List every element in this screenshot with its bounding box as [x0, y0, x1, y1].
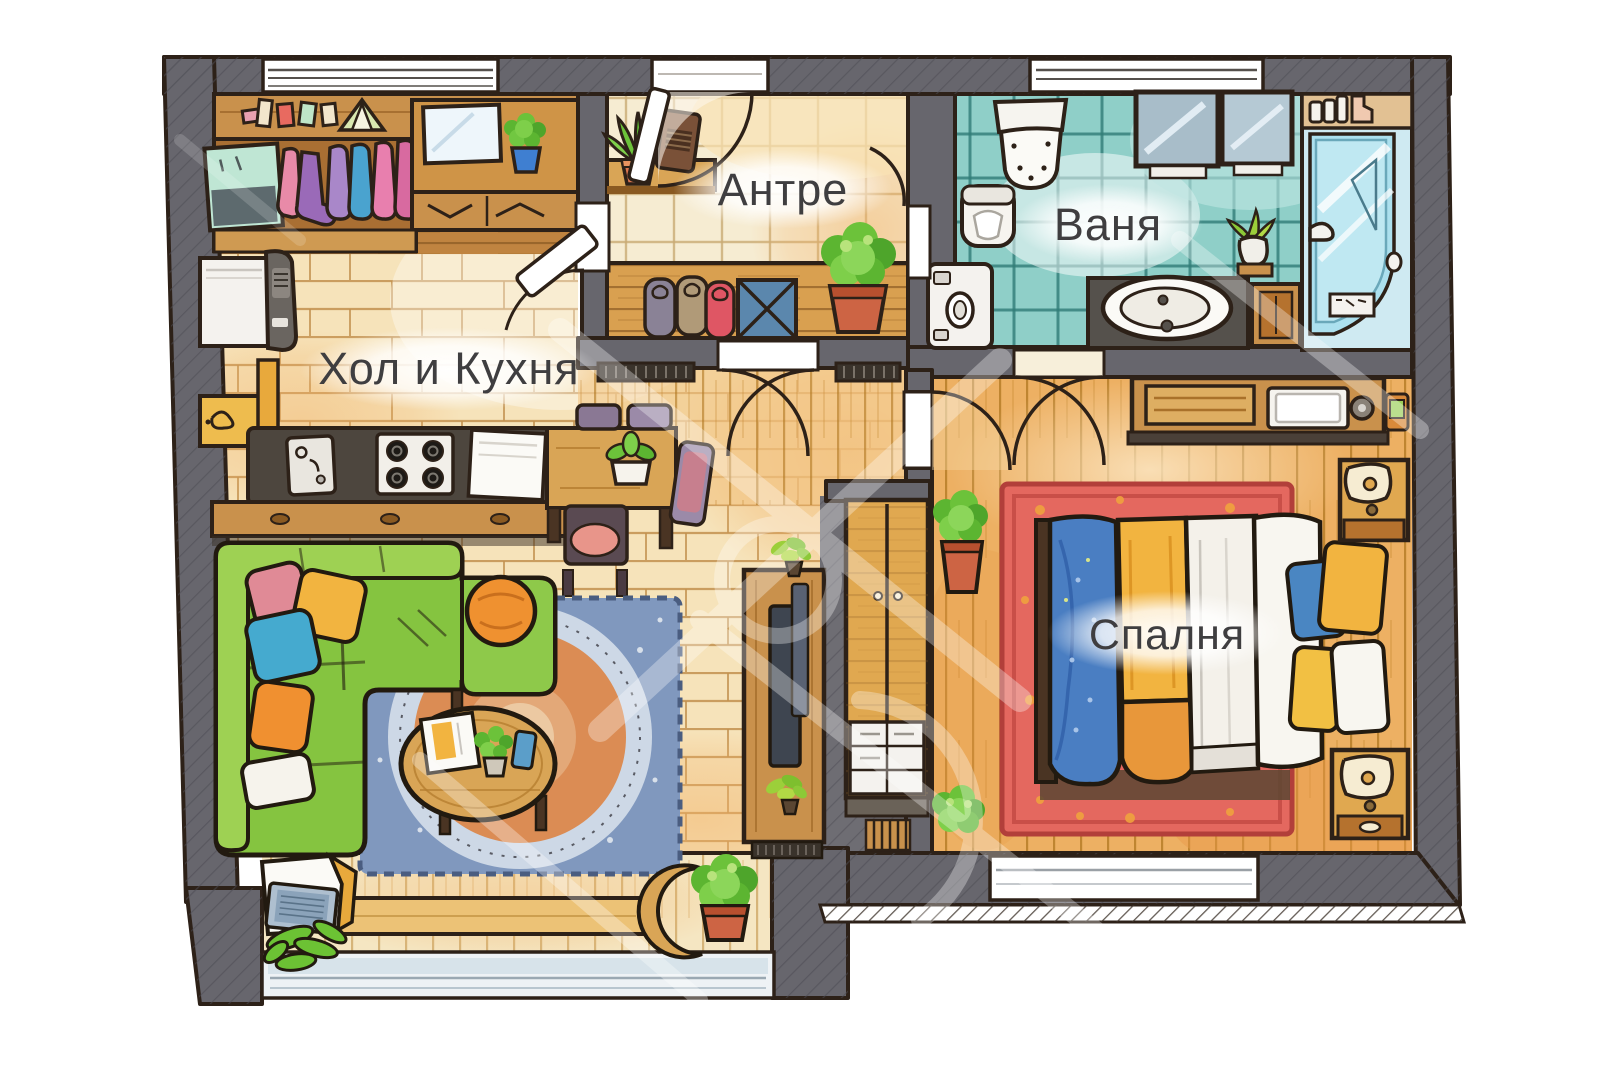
svg-text:Ваня: Ваня — [1054, 199, 1162, 250]
svg-text:Спалня: Спалня — [1089, 611, 1245, 659]
svg-text:Антре: Антре — [718, 164, 849, 215]
svg-text:Хол и Кухня: Хол и Кухня — [318, 343, 579, 394]
